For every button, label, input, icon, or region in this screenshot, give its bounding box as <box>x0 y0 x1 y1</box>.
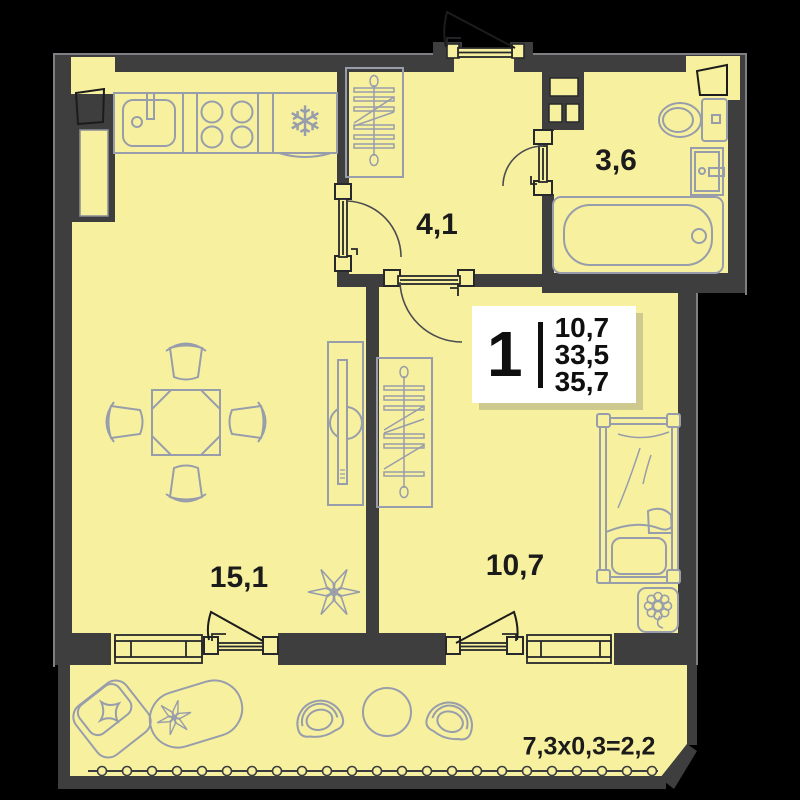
plan-info-card: 1 10,7 33,5 35,7 <box>472 306 636 403</box>
bathroom-window-box <box>686 56 740 100</box>
rooms-count: 1 <box>487 327 523 381</box>
area-value-living: 10,7 <box>555 314 610 341</box>
area-value-total-living: 33,5 <box>555 341 610 368</box>
entrance-door <box>444 12 524 58</box>
area-label-kitchen-living: 15,1 <box>210 561 268 595</box>
balcony-dimension-label: 7,3x0,3=2,2 <box>523 733 656 762</box>
area-value-total: 35,7 <box>555 368 610 395</box>
floor-plan-canvas: ❄ <box>0 0 800 800</box>
kitchen-window-box <box>71 57 115 94</box>
living-window-box <box>111 633 204 666</box>
area-label-bedroom: 10,7 <box>486 549 544 583</box>
area-label-bathroom: 3,6 <box>595 144 637 178</box>
bath-shaft-inset <box>550 78 578 96</box>
card-divider <box>538 322 543 388</box>
floor-plan-page: ❄ <box>0 0 800 800</box>
area-label-hallway: 4,1 <box>416 208 458 242</box>
area-values: 10,7 33,5 35,7 <box>555 314 610 395</box>
fridge-snowflake-icon: ❄ <box>287 97 322 146</box>
kitchen-shaft-inset <box>80 130 108 216</box>
